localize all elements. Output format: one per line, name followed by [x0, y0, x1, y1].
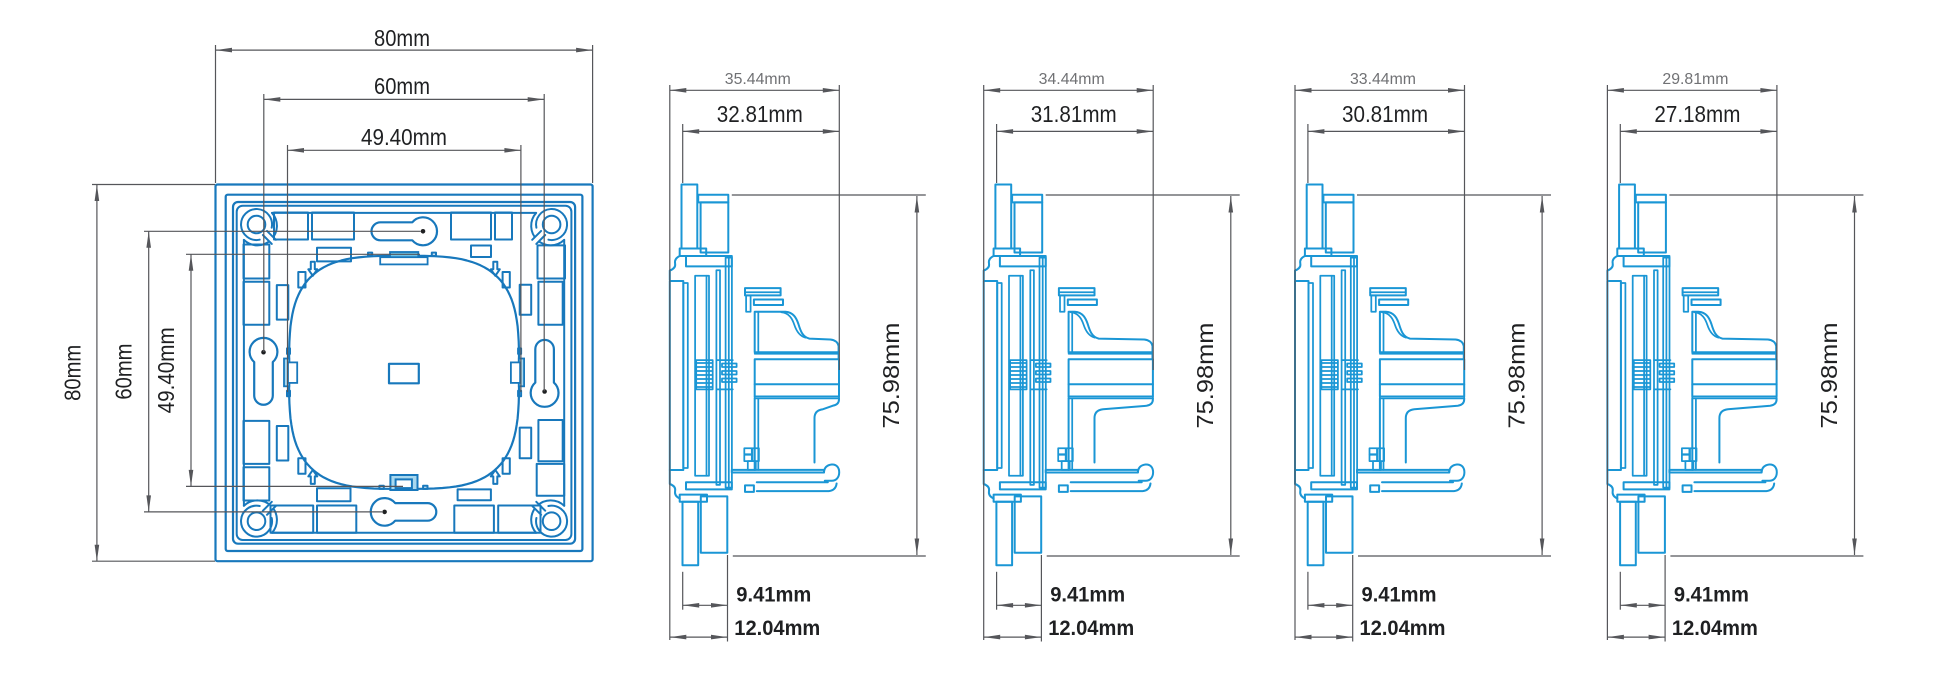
svg-text:75.98mm: 75.98mm — [1503, 323, 1529, 429]
svg-text:12.04mm: 12.04mm — [1672, 616, 1758, 640]
svg-text:9.41mm: 9.41mm — [1362, 583, 1437, 607]
svg-text:9.41mm: 9.41mm — [1674, 583, 1749, 607]
svg-text:75.98mm: 75.98mm — [1192, 323, 1218, 429]
svg-text:12.04mm: 12.04mm — [734, 616, 820, 640]
svg-text:80mm: 80mm — [60, 345, 86, 401]
svg-text:9.41mm: 9.41mm — [1050, 583, 1125, 607]
svg-text:32.81mm: 32.81mm — [717, 101, 803, 127]
svg-text:60mm: 60mm — [374, 73, 430, 99]
svg-text:12.04mm: 12.04mm — [1048, 616, 1134, 640]
svg-text:35.44mm: 35.44mm — [725, 71, 791, 88]
svg-text:29.81mm: 29.81mm — [1662, 71, 1728, 88]
svg-text:9.41mm: 9.41mm — [736, 583, 811, 607]
svg-text:30.81mm: 30.81mm — [1342, 101, 1428, 127]
svg-text:49.40mm: 49.40mm — [153, 327, 179, 413]
svg-text:60mm: 60mm — [111, 344, 137, 400]
svg-text:27.18mm: 27.18mm — [1654, 101, 1740, 127]
svg-text:49.40mm: 49.40mm — [361, 124, 447, 150]
svg-text:31.81mm: 31.81mm — [1031, 101, 1117, 127]
svg-text:80mm: 80mm — [374, 25, 430, 51]
svg-text:12.04mm: 12.04mm — [1360, 616, 1446, 640]
svg-text:75.98mm: 75.98mm — [1816, 323, 1842, 429]
svg-text:33.44mm: 33.44mm — [1350, 71, 1416, 88]
svg-text:34.44mm: 34.44mm — [1039, 71, 1105, 88]
svg-text:75.98mm: 75.98mm — [878, 323, 904, 429]
